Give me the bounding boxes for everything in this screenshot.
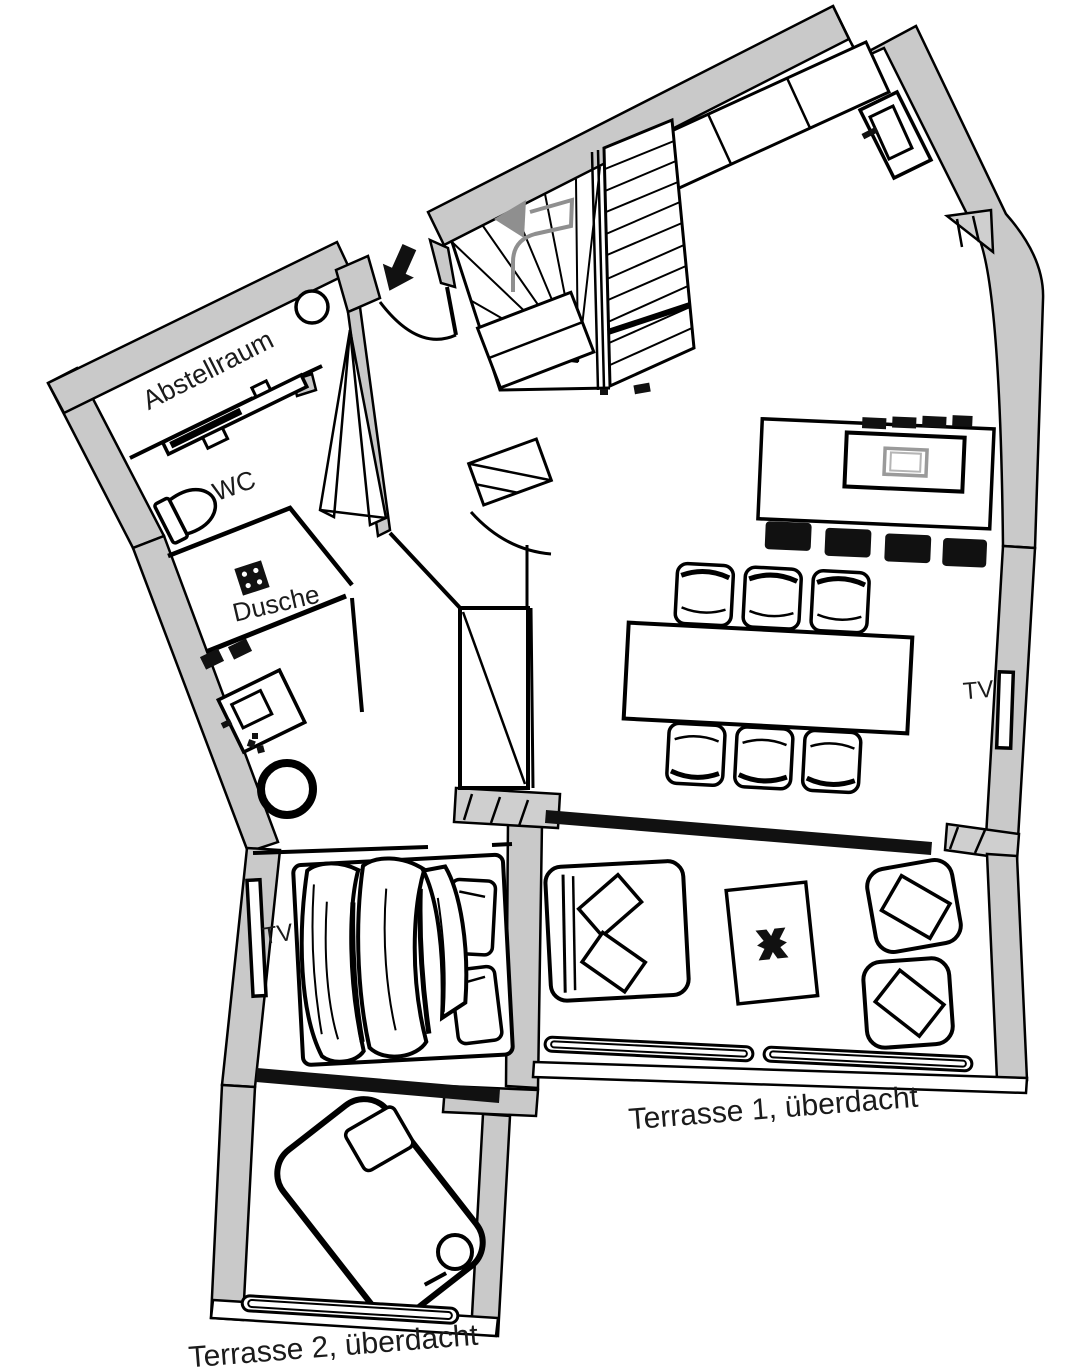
outdoor-sofa <box>545 860 690 1001</box>
shaft <box>460 608 528 788</box>
corner-unit <box>947 210 993 252</box>
room-label-wc: WC <box>208 464 259 507</box>
dining-set <box>620 561 915 796</box>
wall-entry-step <box>430 240 455 287</box>
terrace1-furniture <box>545 857 973 1071</box>
wall-terrace2-left <box>211 1085 255 1320</box>
washing-machine <box>261 763 313 815</box>
bar-stool <box>884 533 931 563</box>
sliding-door-terrace2 <box>256 1068 500 1103</box>
dining-table <box>624 623 913 734</box>
entry-direction-arrow-icon <box>374 240 425 298</box>
dining-chairs-top <box>675 563 870 633</box>
dining-chairs-bottom <box>666 723 861 793</box>
armchair <box>864 857 963 955</box>
entry-door-leaf <box>447 287 456 335</box>
armchair <box>862 957 954 1049</box>
sliding-door-terrace1 <box>545 810 932 855</box>
ceiling-lamp <box>296 291 328 323</box>
hall-door-swing <box>471 512 551 554</box>
drainage-grate <box>545 1037 753 1061</box>
kitchen-island <box>756 407 994 568</box>
tv-label-living: TV <box>962 676 995 706</box>
drainage-grate <box>764 1047 972 1071</box>
entry-door-swing <box>380 302 456 339</box>
coffee-table <box>726 882 817 1004</box>
hall-bench <box>469 439 552 505</box>
bar-stool <box>942 538 987 568</box>
bar-stool <box>824 528 871 558</box>
tv-living <box>997 672 1014 748</box>
wall-terrace1-right <box>987 854 1027 1080</box>
wall-hatched-shaft <box>454 788 560 828</box>
label-terrasse1: Terrasse 1, überdacht <box>627 1081 920 1137</box>
tv-label-bedroom: TV <box>261 919 296 950</box>
floor-plan: Abstellraum WC Dusche TV TV Terrasse 1, … <box>0 0 1076 1367</box>
terrace2-furniture <box>242 1083 500 1329</box>
bar-stool <box>765 521 812 551</box>
side-table <box>438 1235 472 1269</box>
bed <box>293 852 513 1065</box>
floor-plan-page: Abstellraum WC Dusche TV TV Terrasse 1, … <box>0 0 1076 1367</box>
lounge-chair <box>265 1083 500 1329</box>
